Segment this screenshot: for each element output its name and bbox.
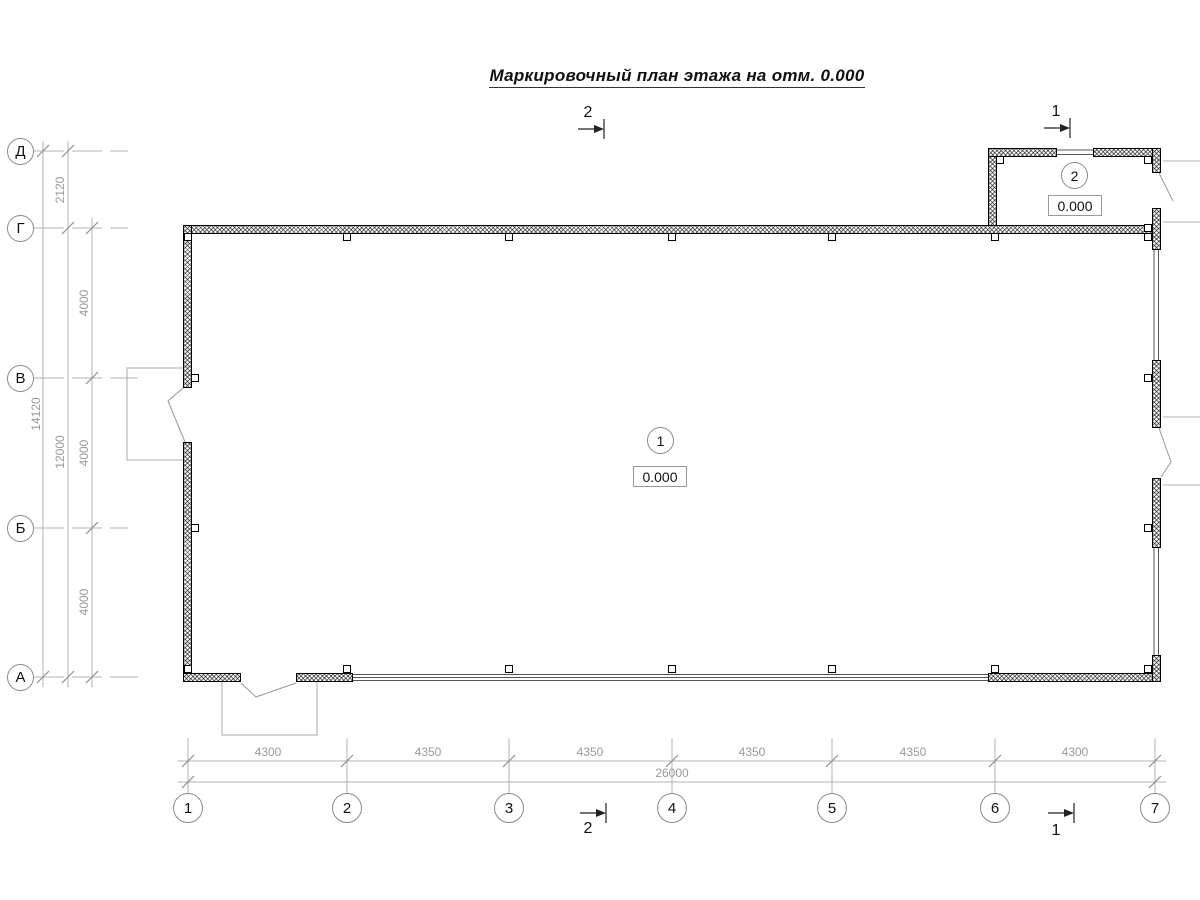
dim-bottom-1: 4300 <box>238 745 298 759</box>
wall-right-seg2 <box>1152 360 1161 428</box>
dim-bottom-3: 4350 <box>560 745 620 759</box>
floor-plan-canvas: Маркировочный план этажа на отм. 0.000 <box>0 0 1200 900</box>
axis-bubble-7: 7 <box>1140 793 1170 823</box>
plan-linework <box>0 0 1200 900</box>
axis-bubble-g: Г <box>7 215 34 242</box>
axis-bubble-4: 4 <box>657 793 687 823</box>
column-marker <box>1144 156 1152 164</box>
annex-wall-right <box>1152 148 1161 173</box>
dim-left-seg-1: 4000 <box>77 273 91 333</box>
room-2-elevation: 0.000 <box>1048 195 1102 216</box>
wall-right-seg4 <box>1152 655 1161 682</box>
column-marker <box>184 233 192 241</box>
column-marker <box>343 665 351 673</box>
wall-bottom-seg2 <box>296 673 353 682</box>
axis-bubble-1: 1 <box>173 793 203 823</box>
axis-bubble-b: Б <box>7 515 34 542</box>
wall-right-seg1 <box>1152 208 1161 250</box>
dim-left-seg-3: 4000 <box>77 572 91 632</box>
wall-left-lower <box>183 442 192 682</box>
column-marker <box>184 665 192 673</box>
column-marker <box>191 524 199 532</box>
column-marker <box>991 665 999 673</box>
dim-bottom-2: 4350 <box>398 745 458 759</box>
axis-bubble-6: 6 <box>980 793 1010 823</box>
dimension-ticks <box>37 145 1161 788</box>
dim-left-upper: 2120 <box>53 160 67 220</box>
dim-left-main: 12000 <box>53 417 67 487</box>
dim-bottom-5: 4350 <box>883 745 943 759</box>
wall-bottom-seg1 <box>183 673 241 682</box>
dim-bottom-total: 26000 <box>637 766 707 780</box>
axis-bubble-3: 3 <box>494 793 524 823</box>
column-marker <box>668 233 676 241</box>
column-marker <box>668 665 676 673</box>
room-1-elevation: 0.000 <box>633 466 687 487</box>
dim-left-overall: 14120 <box>29 379 43 449</box>
dim-bottom-4: 4350 <box>722 745 782 759</box>
column-marker <box>1144 524 1152 532</box>
axis-bubble-d: Д <box>7 138 34 165</box>
axis-bubble-5: 5 <box>817 793 847 823</box>
section-label-2-bottom: 2 <box>578 820 598 838</box>
axis-bubble-a: А <box>7 664 34 691</box>
dim-bottom-6: 4300 <box>1045 745 1105 759</box>
column-marker <box>1144 233 1152 241</box>
room-2-number: 2 <box>1061 162 1088 189</box>
column-marker <box>343 233 351 241</box>
column-marker <box>191 374 199 382</box>
right-landing-lines <box>1163 161 1200 485</box>
column-marker <box>1144 665 1152 673</box>
column-marker <box>505 233 513 241</box>
axis-bubble-2: 2 <box>332 793 362 823</box>
room-1-number: 1 <box>647 427 674 454</box>
column-marker <box>1144 374 1152 382</box>
section-label-2-top: 2 <box>578 104 598 122</box>
column-marker <box>1144 224 1152 232</box>
wall-bottom-seg3 <box>988 673 1160 682</box>
section-label-1-top: 1 <box>1046 103 1066 121</box>
section-label-1-bottom: 1 <box>1046 822 1066 840</box>
column-marker <box>991 233 999 241</box>
wall-left-upper <box>183 225 192 388</box>
column-marker <box>828 665 836 673</box>
column-marker <box>505 665 513 673</box>
column-marker <box>828 233 836 241</box>
dim-left-seg-2: 4000 <box>77 423 91 483</box>
wall-right-seg3 <box>1152 478 1161 548</box>
column-marker <box>996 156 1004 164</box>
